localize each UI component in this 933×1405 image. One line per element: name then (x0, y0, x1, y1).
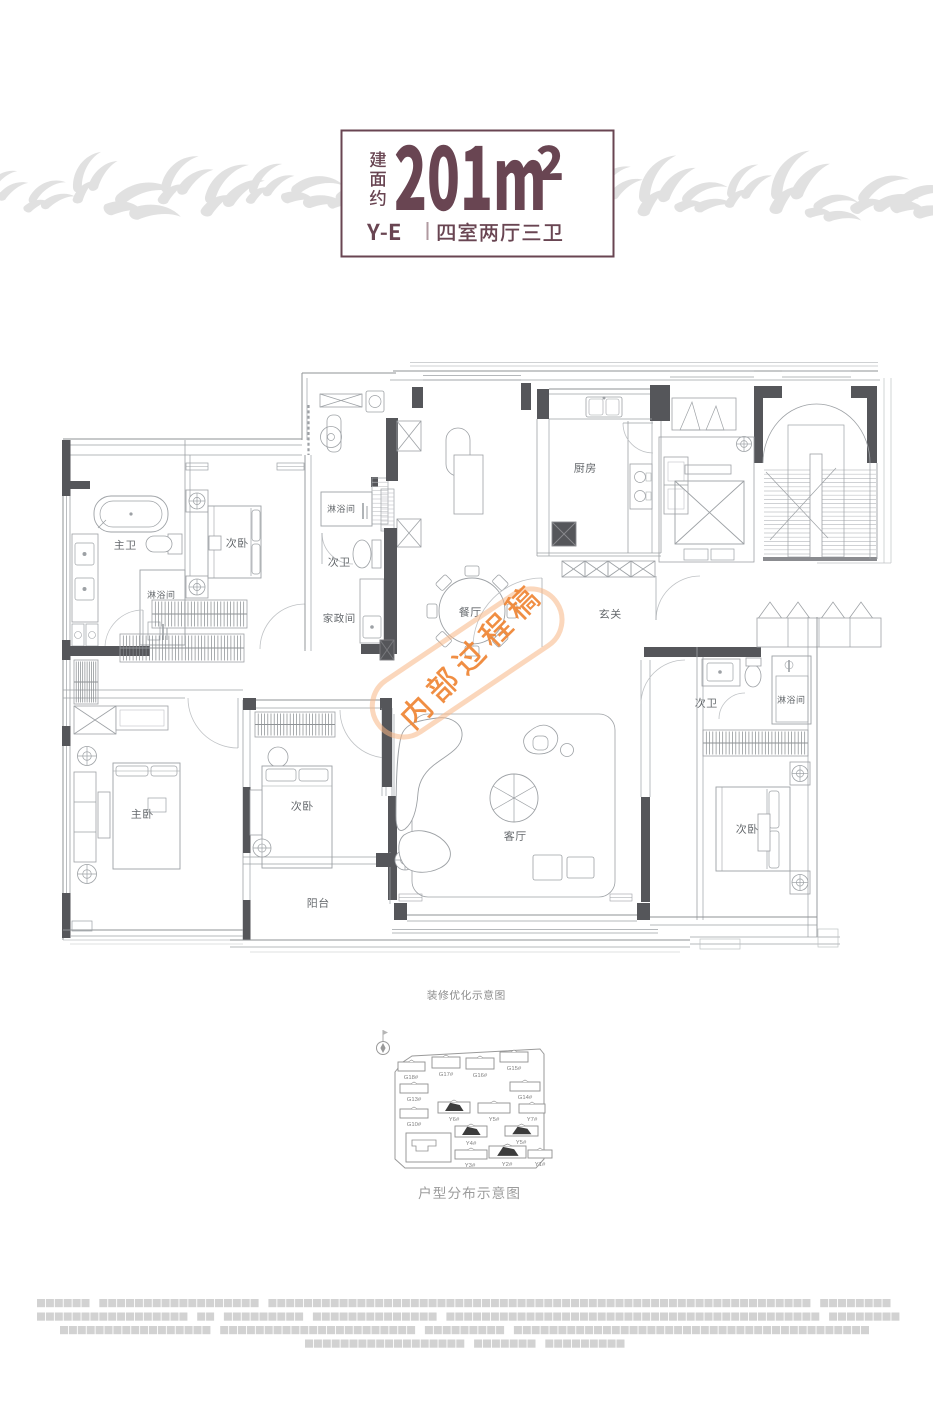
svg-text:G10#: G10# (407, 1122, 422, 1128)
svg-text:Y3#: Y3# (465, 1163, 476, 1169)
svg-text:G17#: G17# (439, 1072, 454, 1078)
svg-text:Y6#: Y6# (449, 1117, 460, 1123)
svg-text:Y1#: Y1# (535, 1162, 546, 1168)
svg-text:G18#: G18# (404, 1075, 419, 1081)
svg-text:Y7#: Y7# (527, 1117, 538, 1123)
svg-text:G13#: G13# (407, 1097, 422, 1103)
svg-text:Y4#: Y4# (466, 1141, 477, 1147)
svg-text:G15#: G15# (507, 1066, 522, 1072)
svg-text:G16#: G16# (473, 1073, 488, 1079)
svg-text:Y5#: Y5# (516, 1140, 527, 1146)
svg-text:Y2#: Y2# (502, 1162, 513, 1168)
svg-text:Y5#: Y5# (489, 1117, 500, 1123)
svg-text:G14#: G14# (518, 1095, 533, 1101)
